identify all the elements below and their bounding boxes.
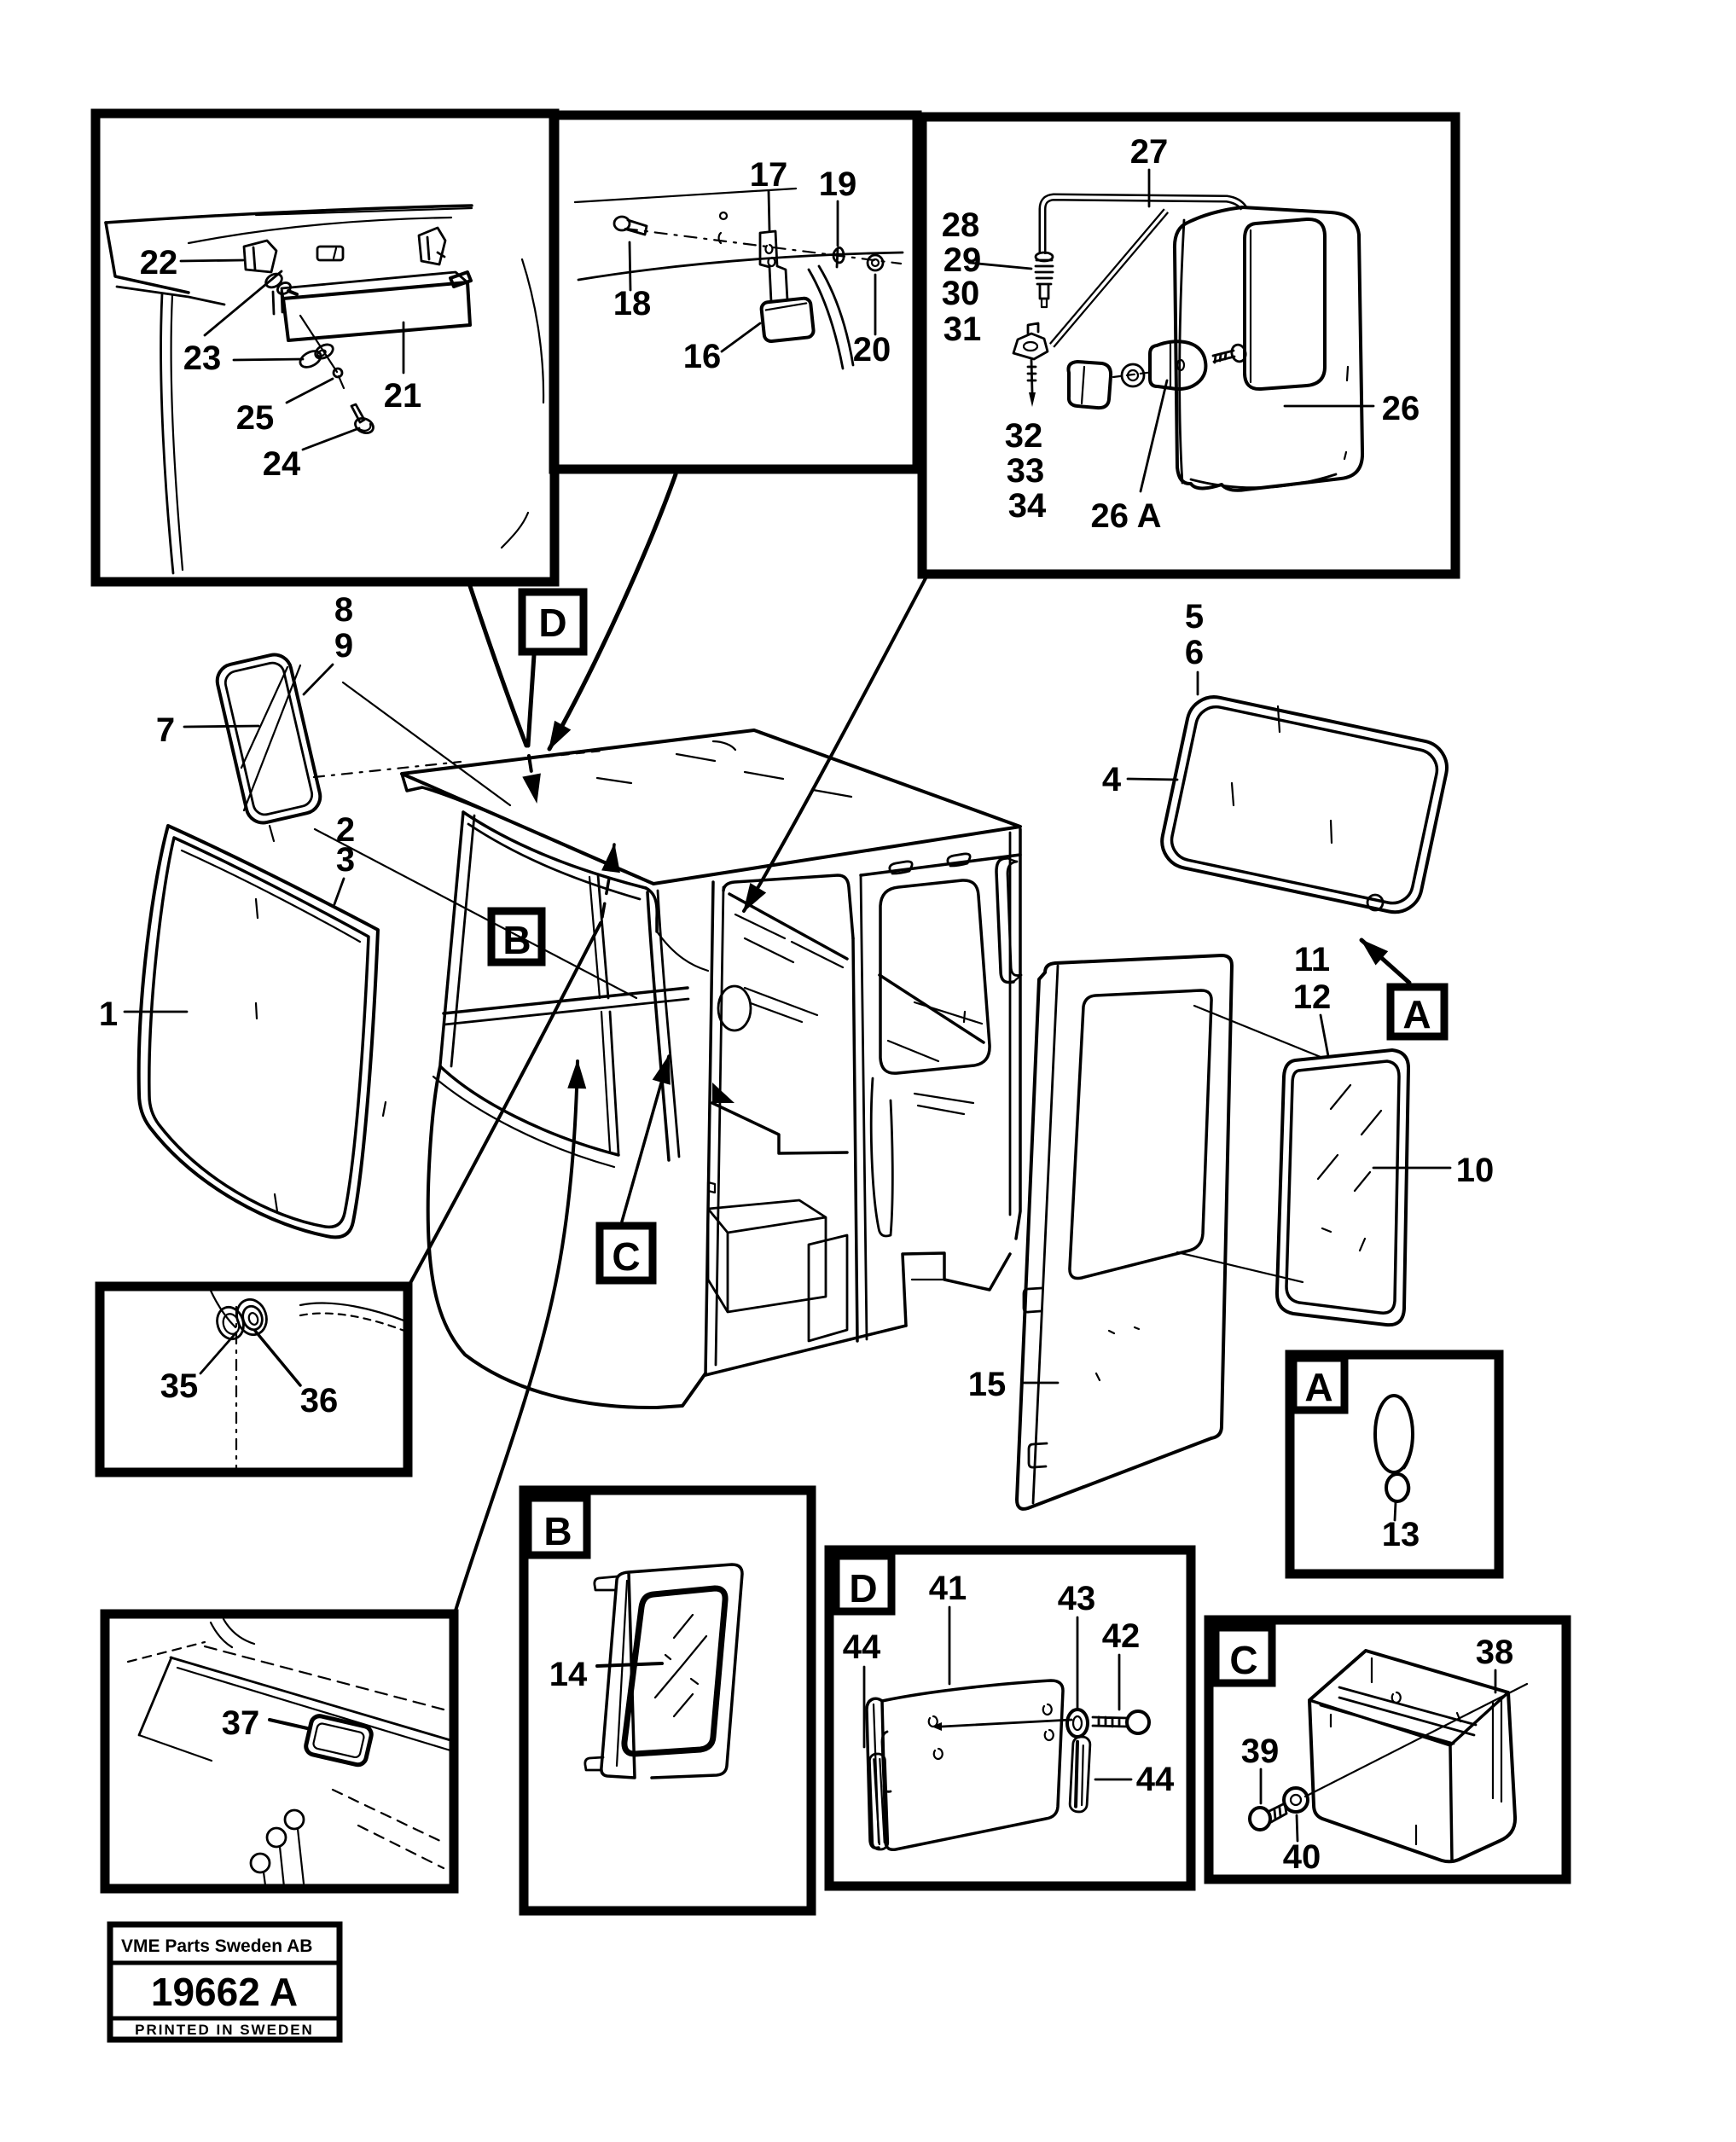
svg-text:10: 10	[1456, 1152, 1495, 1189]
svg-text:21: 21	[384, 377, 422, 415]
svg-text:17: 17	[750, 156, 788, 194]
svg-text:20: 20	[853, 331, 891, 369]
svg-text:39: 39	[1241, 1733, 1280, 1770]
svg-text:D: D	[538, 601, 566, 645]
svg-text:26: 26	[1382, 390, 1420, 427]
svg-text:23: 23	[183, 340, 222, 377]
svg-text:C: C	[612, 1234, 640, 1279]
svg-text:43: 43	[1058, 1580, 1096, 1617]
svg-text:11: 11	[1294, 941, 1330, 978]
svg-text:37: 37	[222, 1704, 260, 1742]
svg-text:D: D	[849, 1566, 877, 1611]
svg-text:22: 22	[140, 244, 178, 282]
svg-text:35: 35	[160, 1367, 199, 1405]
svg-text:8: 8	[334, 591, 353, 629]
svg-text:31: 31	[943, 311, 982, 348]
svg-text:26 A: 26 A	[1090, 497, 1161, 535]
svg-text:42: 42	[1102, 1617, 1141, 1655]
svg-text:29: 29	[943, 241, 982, 279]
svg-text:14: 14	[549, 1656, 588, 1693]
svg-text:34: 34	[1008, 487, 1047, 525]
svg-text:33: 33	[1007, 452, 1045, 490]
svg-text:38: 38	[1476, 1634, 1514, 1671]
svg-text:28: 28	[942, 206, 980, 244]
svg-text:25: 25	[236, 399, 275, 437]
svg-text:7: 7	[156, 711, 175, 749]
svg-text:41: 41	[929, 1570, 967, 1607]
svg-text:PRINTED IN SWEDEN: PRINTED IN SWEDEN	[135, 2022, 314, 2038]
svg-text:9: 9	[334, 627, 353, 665]
svg-text:6: 6	[1185, 634, 1204, 671]
svg-text:27: 27	[1130, 133, 1169, 171]
svg-text:40: 40	[1283, 1838, 1321, 1876]
svg-text:32: 32	[1005, 417, 1043, 455]
svg-text:A: A	[1304, 1365, 1332, 1409]
svg-text:15: 15	[968, 1366, 1007, 1403]
svg-text:5: 5	[1185, 598, 1204, 636]
svg-text:24: 24	[263, 445, 301, 483]
svg-text:36: 36	[300, 1382, 339, 1419]
svg-text:16: 16	[683, 338, 722, 375]
svg-text:18: 18	[613, 285, 652, 322]
svg-text:19662 A: 19662 A	[151, 1970, 298, 2014]
svg-text:4: 4	[1102, 761, 1122, 798]
svg-text:19: 19	[819, 165, 857, 203]
svg-text:C: C	[1229, 1638, 1257, 1682]
svg-text:3: 3	[336, 841, 355, 879]
svg-text:30: 30	[942, 275, 980, 312]
svg-text:1: 1	[99, 996, 118, 1033]
svg-text:13: 13	[1382, 1516, 1420, 1553]
svg-text:12: 12	[1293, 978, 1332, 1016]
svg-text:B: B	[543, 1509, 572, 1553]
svg-text:A: A	[1402, 992, 1431, 1036]
svg-text:44: 44	[1136, 1761, 1175, 1798]
svg-text:VME Parts Sweden AB: VME Parts Sweden AB	[121, 1936, 312, 1956]
svg-text:44: 44	[843, 1628, 881, 1666]
